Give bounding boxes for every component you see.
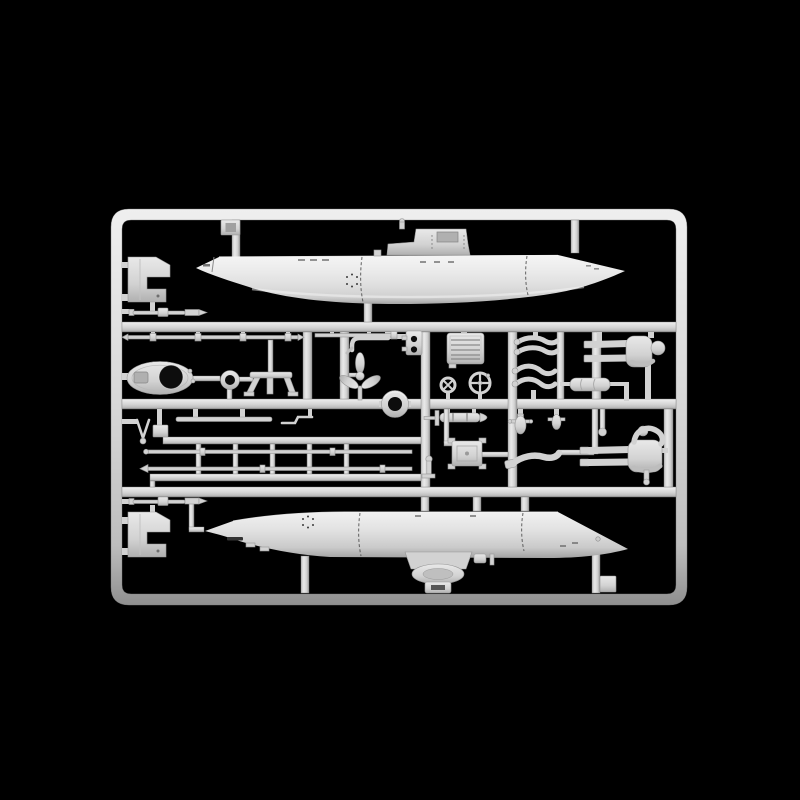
sprue-tab-top <box>221 220 240 235</box>
rail-b-right <box>407 399 676 409</box>
sprue-photo <box>0 0 800 800</box>
bedroll-cylinder <box>570 378 610 391</box>
periscope-pin <box>400 219 405 230</box>
handwheel-cross-spoke <box>470 373 490 393</box>
small-bracket <box>153 425 168 437</box>
deck-cleat <box>374 250 381 256</box>
rail-c <box>122 487 676 497</box>
large-ring <box>382 391 409 418</box>
sprue-tab-bottom <box>600 576 616 592</box>
rail-b-left <box>122 399 383 409</box>
vent-grille-panel <box>447 333 484 368</box>
product-photo <box>0 0 800 800</box>
tower-hatch-recess <box>437 232 458 242</box>
rail-a <box>122 322 676 332</box>
